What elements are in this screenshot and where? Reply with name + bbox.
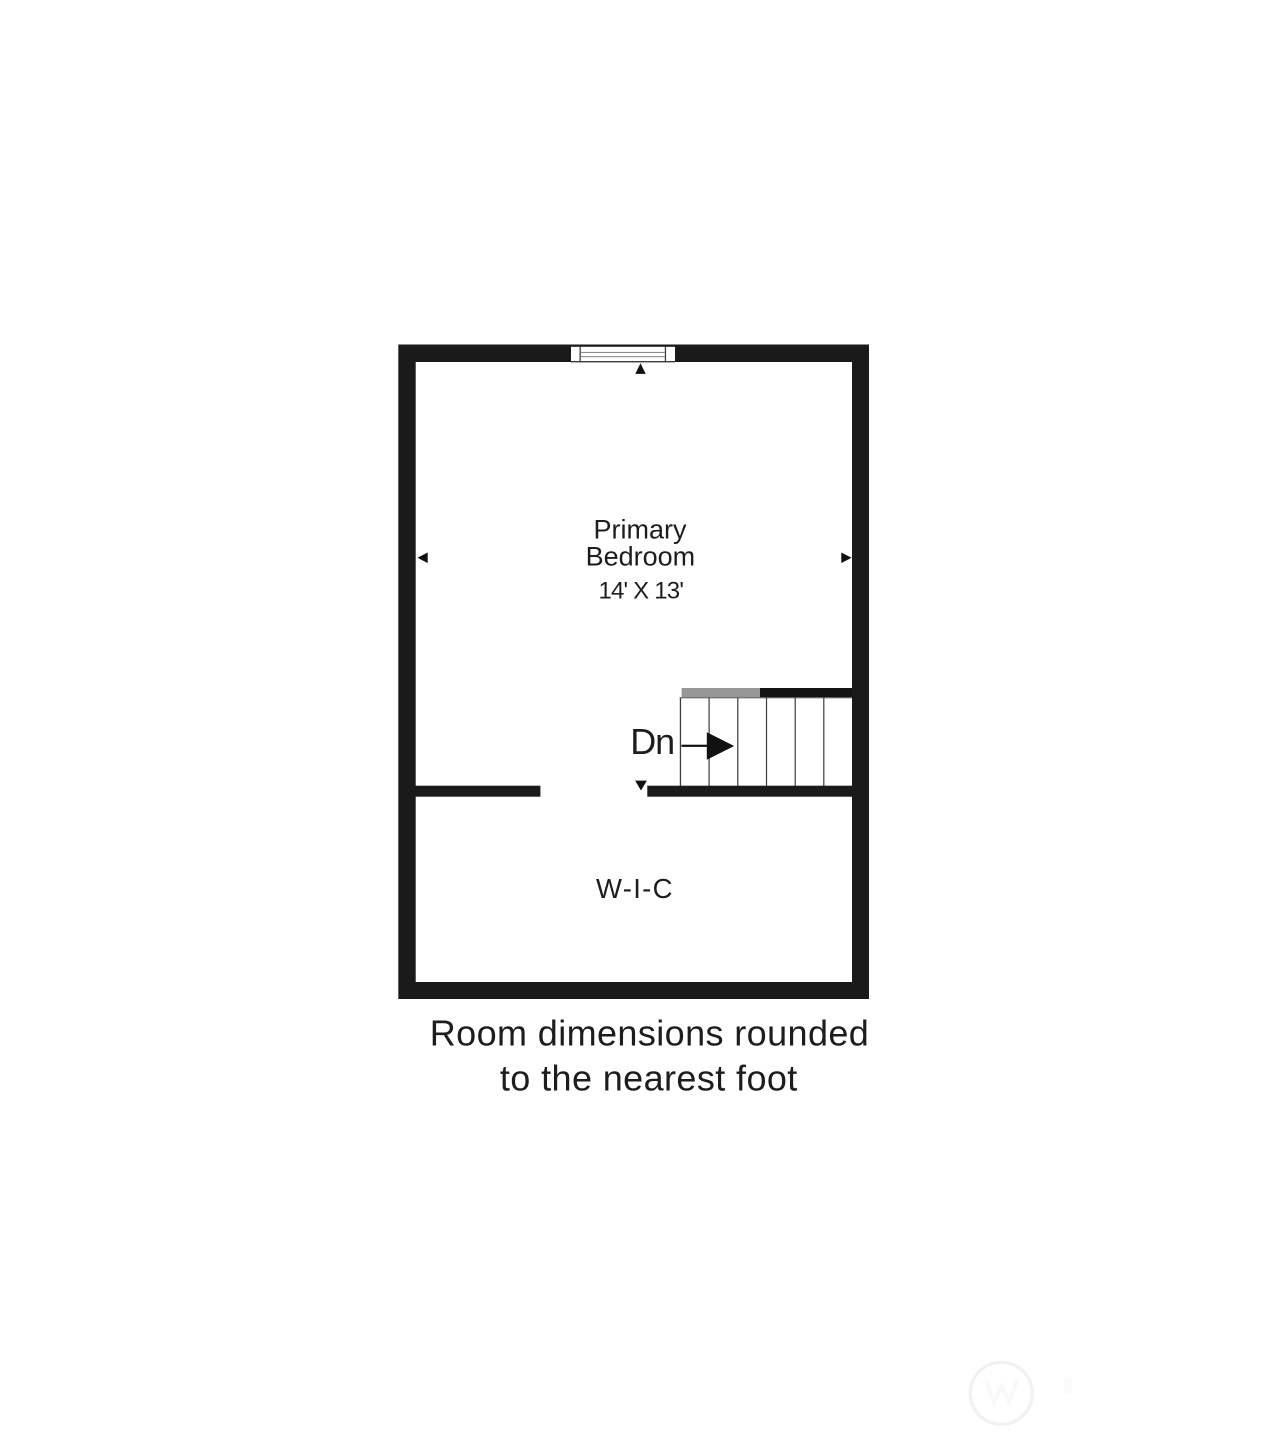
svg-text:14' X 13': 14' X 13' (598, 577, 683, 604)
svg-text:to the nearest foot: to the nearest foot (500, 1058, 798, 1099)
svg-text:Bedroom: Bedroom (586, 541, 696, 571)
svg-text:W-I-C: W-I-C (596, 873, 674, 904)
svg-text:Room dimensions rounded: Room dimensions rounded (430, 1012, 869, 1053)
svg-text:Dn: Dn (630, 721, 674, 762)
svg-text:Primary: Primary (594, 514, 687, 544)
